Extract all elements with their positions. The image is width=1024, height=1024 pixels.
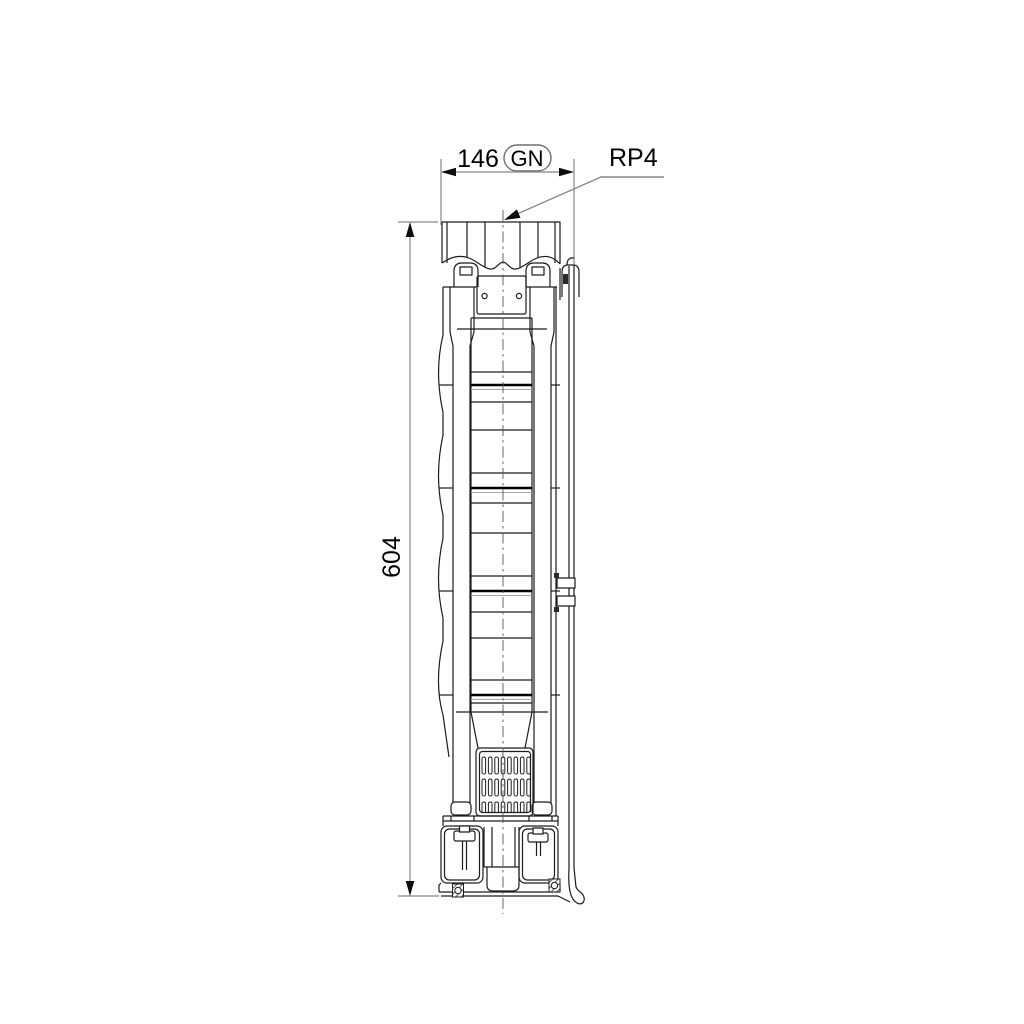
drawing-canvas: 146 GN RP4 604: [0, 0, 1024, 1024]
clamp-screw-upper: [554, 573, 559, 578]
gn-badge-label: GN: [511, 146, 544, 171]
cable-clamp-tab-lower: [557, 596, 575, 606]
height-dimension-value: 604: [378, 536, 406, 578]
pump-dimensional-drawing: 146 GN RP4 604: [0, 0, 1024, 1024]
clamp-screw-lower: [554, 607, 559, 612]
width-dimension-value: 146: [457, 145, 499, 173]
cable-clamp-tab-upper: [557, 578, 575, 588]
connection-label: RP4: [609, 144, 658, 172]
bracket-pin: [563, 274, 568, 284]
